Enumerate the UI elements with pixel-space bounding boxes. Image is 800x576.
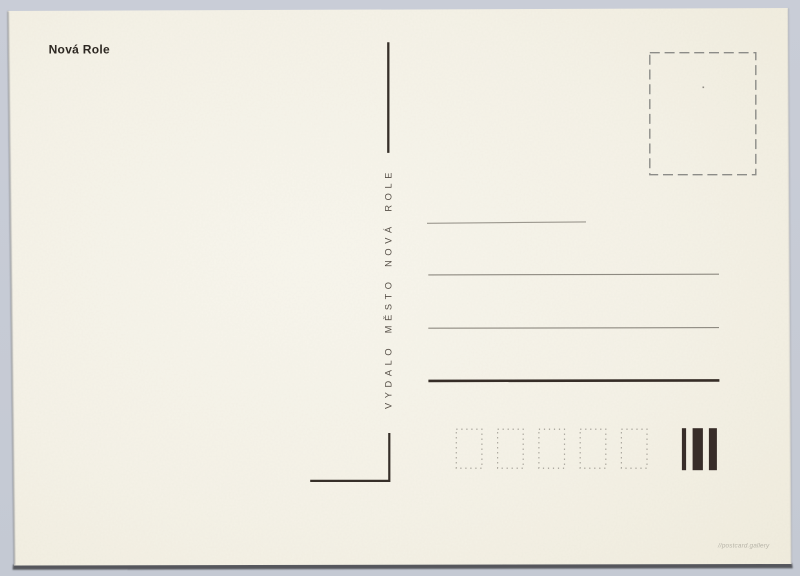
svg-text://postcard.gallery: //postcard.gallery — [717, 542, 770, 549]
svg-text:VYDALO MĚSTO NOVÁ ROLE: VYDALO MĚSTO NOVÁ ROLE — [383, 168, 393, 409]
svg-text:Nová Role: Nová Role — [49, 43, 110, 57]
